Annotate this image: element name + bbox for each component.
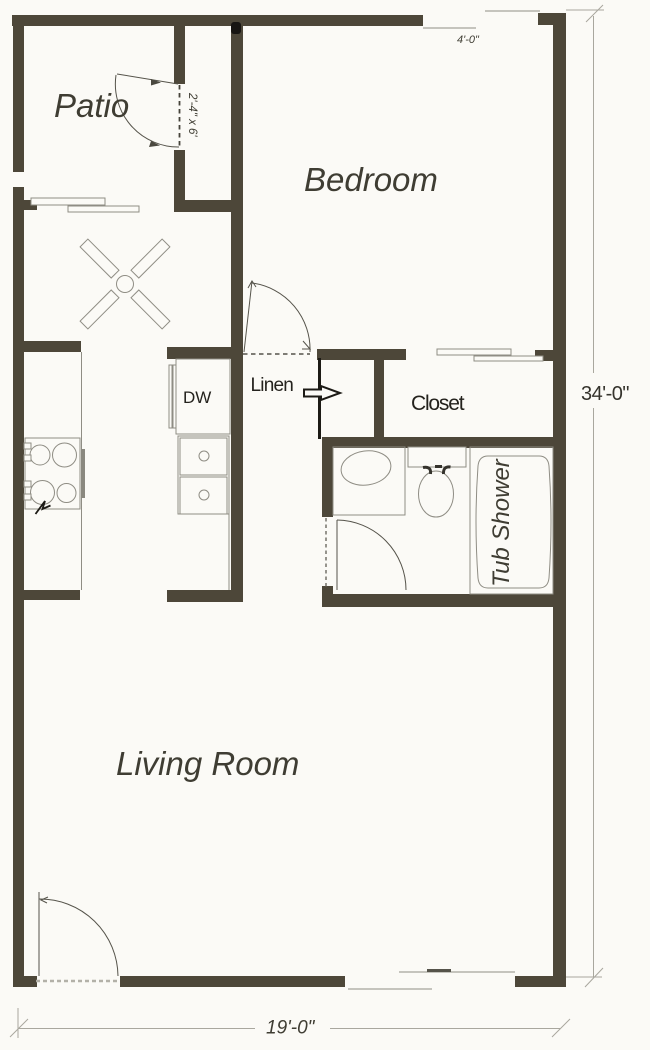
svg-text:34'-0": 34'-0"	[581, 383, 629, 405]
svg-text:19'-0": 19'-0"	[266, 1018, 316, 1039]
svg-text:Closet: Closet	[411, 392, 465, 415]
svg-text:Tub Shower: Tub Shower	[488, 458, 515, 587]
svg-text:4'-0": 4'-0"	[457, 34, 480, 46]
svg-text:Patio: Patio	[54, 87, 129, 124]
svg-text:2'-4" x 6': 2'-4" x 6'	[186, 92, 198, 137]
svg-text:DW: DW	[183, 388, 211, 407]
svg-text:Bedroom: Bedroom	[304, 161, 438, 198]
svg-text:Linen: Linen	[251, 375, 294, 396]
svg-text:Living Room: Living Room	[116, 745, 299, 782]
